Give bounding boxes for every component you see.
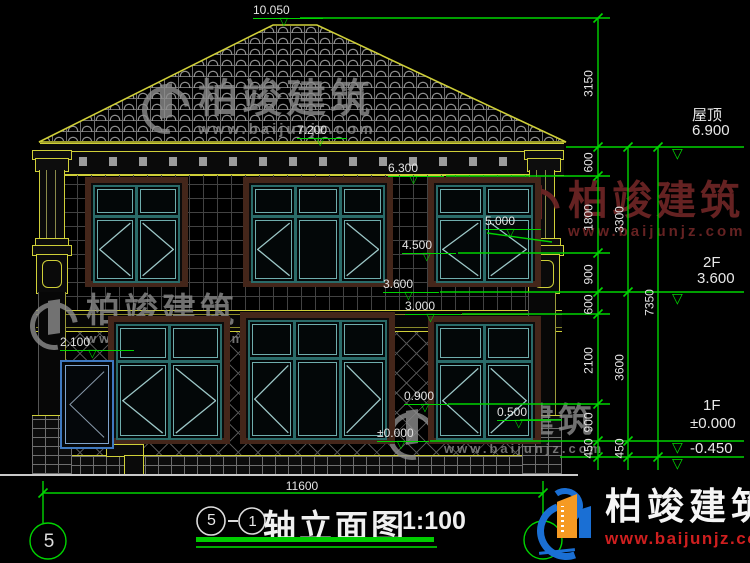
entry-door [60,360,114,449]
window-pane [250,322,293,357]
window-2f-right [428,177,541,287]
level-roof-apex: 10.050▽ [253,4,323,19]
level-pedestal: 0.500▽ [497,406,543,421]
window-pane [486,326,531,360]
left-column-shaft [39,170,65,238]
floor1-label: 1F [703,397,721,414]
window-pane [342,187,383,215]
floor1-level: ±0.000 [690,415,736,432]
window-1f-right [428,316,541,444]
level-triangle-icon: ▽ [506,228,514,239]
brand-name: 柏竣建筑 [605,486,750,529]
level-triangle-icon: ▽ [88,349,96,360]
basement-level: -0.450 [690,440,733,457]
casement-glyph [142,222,174,277]
axis-bubble-5: 5 [41,531,57,553]
drawing-scale: 1:100 [402,507,466,536]
window-pane [486,187,531,215]
level-2f-floor: 3.600▽ [383,278,439,293]
window-pane [342,218,383,281]
title-axis-b: 1 [246,513,259,530]
title-underline-thin [196,546,437,548]
level-door-top: 2.100▽ [60,336,134,351]
window-2f-left [85,177,188,287]
dim-1800: 1800 [583,195,596,241]
window-pane [253,218,294,281]
floor2-level: 3.600 [697,270,735,287]
dim-7350: 7350 [644,280,657,326]
level-triangle-icon: ▽ [514,419,522,430]
overall-width-dim: 11600 [272,479,332,493]
level-2f-window-top: 6.300▽ [388,162,444,177]
watermark-brand-name: 柏竣建筑 [198,78,375,120]
window-pane [171,363,221,438]
left-column-panel [36,254,68,294]
level-2f-window-sill: 4.500▽ [402,239,456,254]
watermark-right: 柏竣建筑 www.baijunjz.com [510,180,745,240]
casement-glyph [122,367,164,434]
window-pane [438,326,483,360]
level-triangle-icon: ▽ [672,147,683,160]
brand-logo-icon [535,486,599,560]
window-pane [342,322,385,357]
dim-3600: 3600 [614,345,627,391]
roof-level: 6.900 [692,122,730,139]
dim-2100: 2100 [583,338,596,384]
level-ground-floor: ±0.000▽ [377,427,429,442]
level-triangle-icon: ▽ [397,440,405,451]
window-pane [118,363,168,438]
level-1f-window-sill: 0.900▽ [404,390,448,405]
level-triangle-icon: ▽ [409,175,417,186]
window-pane [138,187,178,215]
dim-600: 600 [583,282,596,328]
level-triangle-icon: ▽ [421,403,429,414]
level-triangle-icon: ▽ [672,441,683,454]
ground-line [0,474,578,476]
title-underline-thick [196,537,434,542]
dim-450: 450 [583,426,596,472]
dim-450: 450 [614,426,627,472]
brand-url: www.baijunjz.com [605,529,750,549]
casement-glyph [99,222,131,277]
door-leaf-glyph [68,368,106,441]
window-pane [297,187,338,215]
casement-glyph [346,364,381,434]
elevation-drawing-canvas: 柏竣建筑 www.baijunjz.com 柏竣建筑 www.baijunjz.… [0,0,750,563]
window-pane [95,218,135,281]
casement-glyph [346,222,379,277]
entry-step [124,455,144,475]
window-pane [296,360,339,438]
window-pane [95,187,135,215]
dim-3150: 3150 [583,61,596,107]
level-triangle-icon: ▽ [316,137,324,148]
window-pane [253,187,294,215]
casement-glyph [257,222,290,277]
window-pane [171,326,221,360]
level-triangle-icon: ▽ [280,17,288,28]
dim-3300: 3300 [614,197,627,243]
casement-glyph [254,364,289,434]
dim-600: 600 [583,140,596,186]
level-1f-window-top: 3.000▽ [405,300,461,315]
eave-cornice-band [40,143,564,176]
window-2f-center [243,177,393,287]
level-column-capital: 5.000▽ [485,215,541,230]
casement-glyph [175,367,217,434]
floor2-label: 2F [703,254,721,271]
title-axis-a: 5 [204,512,219,530]
window-pane [486,363,531,438]
brand-logo-watermark-icon [140,78,190,134]
window-pane [138,218,178,281]
level-triangle-icon: ▽ [426,313,434,324]
level-eave: 7.200▽ [297,124,347,139]
level-triangle-icon: ▽ [423,252,431,263]
window-pane [296,322,339,357]
window-pane [438,187,483,215]
level-triangle-icon: ▽ [672,292,683,305]
window-pane [250,360,293,438]
window-1f-center [240,312,395,444]
level-triangle-icon: ▽ [672,457,683,470]
watermark-brand-url: www.baijunjz.com [198,121,375,138]
window-pane [297,218,338,281]
brand-logo: 柏竣建筑 www.baijunjz.com [535,486,750,560]
